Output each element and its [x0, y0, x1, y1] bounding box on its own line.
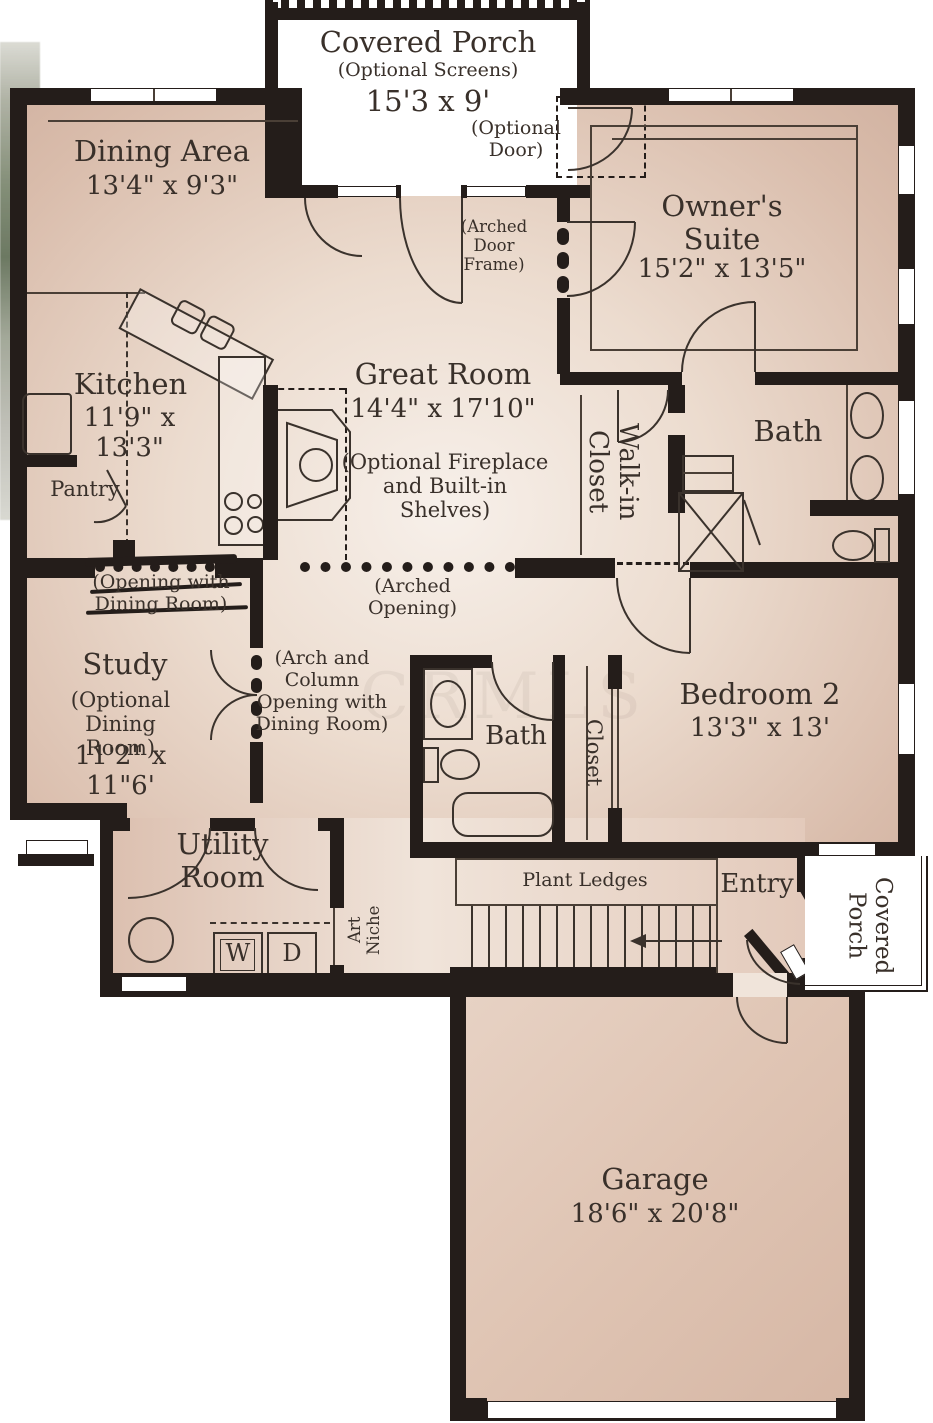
dining-area-dims: 13'4" x 9'3"	[62, 172, 262, 202]
kitchen-dims: 11'9" x 13'3"	[72, 404, 187, 464]
linen-shelf-line	[683, 472, 733, 474]
bath2-tub	[452, 792, 554, 837]
wall-suite-bath	[755, 372, 915, 385]
wall-art-niche	[330, 818, 344, 908]
stove-burner	[247, 516, 264, 533]
optional-door-note: (Optional Door)	[462, 118, 570, 162]
washer-label: W	[213, 940, 263, 968]
arched-opening-note: (Arched Opening)	[330, 576, 495, 620]
art-niche-inner-line	[333, 908, 335, 965]
suite-right-window	[898, 145, 915, 195]
kitchen-label: Kitchen	[48, 368, 213, 401]
garage-door	[487, 1401, 838, 1419]
arched-door-frame-note: (Arched Door Frame)	[450, 218, 538, 275]
covered-porch-top-dims: 15'3 x 9'	[328, 85, 528, 118]
wall-front-seg	[396, 185, 401, 198]
entry-label: Entry	[718, 870, 796, 900]
stove-burner	[224, 492, 243, 511]
struck-opening-note: (Opening with Dining Room)	[85, 572, 237, 616]
wall-toilet-nook	[810, 500, 898, 516]
bedroom2-label: Bedroom 2	[660, 678, 860, 711]
wall-closet2-right-stub	[608, 655, 622, 689]
dining-area-label: Dining Area	[52, 135, 272, 168]
arch-column-note: (Arch and Column Opening with Dining Roo…	[248, 648, 396, 735]
closet2-bifold-line	[611, 689, 613, 808]
wall-front-seg	[278, 185, 338, 198]
arched-frame-dot	[557, 276, 569, 293]
water-heater	[128, 917, 174, 963]
plant-ledges-label: Plant Ledges	[505, 870, 665, 892]
front-window-left	[337, 186, 397, 197]
great-room-dims: 14'4" x 17'10"	[333, 395, 553, 425]
owners-sink	[850, 455, 884, 502]
front-window-right	[466, 186, 526, 197]
arched-frame-dot	[557, 228, 569, 245]
entry-porch-window	[818, 843, 876, 856]
dining-soffit-line	[48, 120, 298, 122]
stove-burner	[247, 494, 262, 509]
refrigerator	[22, 393, 72, 455]
owners-sink	[850, 392, 884, 439]
utility-bottom-window	[121, 976, 187, 992]
study-bottom-window	[26, 840, 88, 855]
garage-jamb	[836, 1398, 851, 1419]
bedroom2-dims: 13'3" x 13'	[665, 714, 855, 744]
bath2-sink	[430, 680, 466, 728]
wall-porch-right	[577, 2, 590, 98]
entry-porch-label: Covered Porch	[838, 868, 896, 983]
stove-burner	[224, 516, 243, 535]
wd-dashed-line	[210, 922, 330, 924]
bath-right-window	[898, 400, 915, 495]
garage-jamb	[466, 1398, 487, 1419]
wall-study-right	[250, 742, 263, 803]
wall-porch-corner	[278, 88, 302, 198]
owners-suite-dims: 15'2" x 13'5"	[622, 255, 822, 285]
wall-hall	[515, 558, 615, 578]
garage-dims: 18'6" x 20'8"	[560, 1200, 750, 1230]
closet2-label: Closet	[572, 678, 606, 828]
wall-study-right	[250, 578, 263, 648]
walkin-closet-label: Walk-in Closet	[582, 392, 642, 552]
floor-plan: CRMLS	[0, 0, 933, 1423]
vanity-counter-line	[846, 385, 848, 510]
suite-window-mullion	[730, 89, 732, 101]
covered-porch-top-label: Covered Porch	[308, 26, 548, 59]
bedroom2-right-window	[898, 683, 915, 755]
owners-bath-label: Bath	[748, 415, 828, 448]
utility-room-label: Utility Room	[155, 828, 290, 895]
suite-right-window	[898, 268, 915, 325]
dining-window-mullion	[153, 89, 155, 101]
great-room-note: (Optional Fireplace and Built-in Shelves…	[335, 450, 555, 522]
closet2-bifold-line	[617, 689, 619, 808]
stair-rail	[450, 967, 718, 974]
wall-utility-top	[113, 818, 130, 831]
arched-opening-dots	[300, 562, 515, 572]
wall-closet-bath-divider	[668, 385, 685, 413]
wall-suite-left	[557, 195, 570, 222]
study-window-ledge	[18, 854, 94, 866]
arched-frame-dot	[557, 252, 569, 269]
owners-toilet-tank	[874, 528, 890, 563]
study-dims: 11'2" x 11"6'	[38, 742, 203, 802]
garage-entry-gap	[733, 973, 787, 997]
wall-utility-left	[100, 815, 113, 997]
wall-bottom-band	[100, 973, 733, 997]
owners-suite-label: Owner's Suite	[642, 190, 802, 257]
dryer-label: D	[267, 940, 317, 968]
wall-fireplace-stub	[263, 385, 278, 560]
wall-left	[10, 88, 27, 820]
bath2-toilet-tank	[423, 747, 439, 783]
wall-bath2-left	[410, 655, 423, 847]
suite-tray-line	[612, 138, 858, 140]
wall-garage-left	[450, 973, 466, 1406]
shower	[678, 492, 744, 572]
wall-pantry	[27, 455, 77, 467]
wall-porch-left	[265, 2, 278, 198]
wall-closet2-right-stub	[608, 808, 622, 842]
great-room-label: Great Room	[333, 358, 553, 391]
wall-suite-bath	[560, 372, 682, 385]
art-niche-label: Art Niche	[346, 890, 366, 970]
garage-label: Garage	[560, 1163, 750, 1196]
bath2-toilet-bowl	[440, 749, 480, 780]
wall-garage-right	[849, 991, 865, 1406]
covered-porch-top-note: (Optional Screens)	[318, 60, 538, 82]
pantry-label: Pantry	[40, 477, 130, 501]
wall-kitchen-study	[10, 558, 95, 578]
bath2-label: Bath	[480, 722, 552, 752]
wall-porch-top	[265, 8, 590, 20]
owners-toilet-bowl	[832, 530, 874, 561]
study-label: Study	[65, 648, 185, 681]
stair-treads	[456, 906, 718, 969]
wall-suite-left	[557, 298, 570, 374]
